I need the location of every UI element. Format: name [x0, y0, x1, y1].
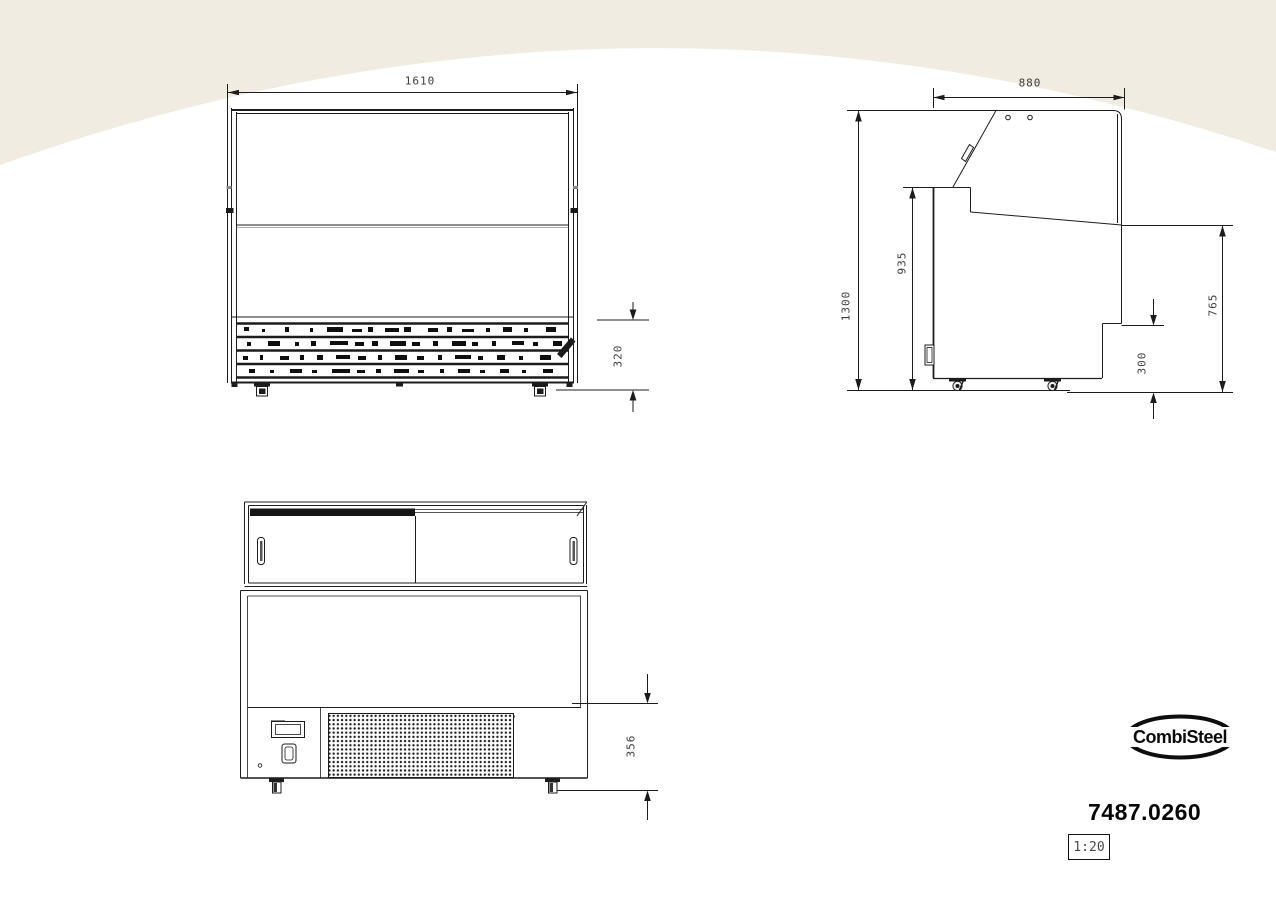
side-depth-dim-lines	[934, 88, 1125, 110]
side-view-drawing	[815, 55, 1265, 430]
power-switch	[282, 744, 296, 763]
dim-label-side-height: 1300	[840, 291, 853, 322]
louvre-leader-wedge	[557, 338, 576, 359]
drawing-sheet: 1610 320 880 1300 935 765 300 356 CombiS…	[0, 0, 1276, 897]
dim-label-side-recess: 300	[1136, 352, 1149, 375]
door-handles	[258, 538, 578, 565]
rear-view-drawing	[220, 495, 670, 830]
side-switch-box	[925, 345, 934, 365]
post-joint-marks	[226, 186, 578, 213]
scale-value: 1:20	[1073, 840, 1104, 855]
dim-label-side-display: 765	[1207, 294, 1220, 317]
side-height-dim-lines	[847, 111, 996, 391]
scale-box: 1:20	[1068, 834, 1110, 860]
side-casters	[949, 379, 1061, 391]
controller-display	[271, 721, 305, 738]
rear-dim-arrows	[644, 693, 651, 801]
floor-line	[847, 391, 1233, 393]
side-glass-diagonal	[953, 111, 996, 188]
dim-label-side-worktop: 935	[896, 252, 909, 275]
combisteel-logo: CombiSteel	[1118, 727, 1242, 747]
product-code: 7487.0260	[1088, 799, 1240, 826]
dim-label-front-base: 320	[612, 345, 625, 368]
side-glass-outline	[996, 111, 1122, 226]
side-dim-arrows	[855, 95, 1226, 403]
side-worktop	[933, 188, 1122, 226]
dim-label-side-depth: 880	[1019, 77, 1042, 90]
door-bottom-lines	[245, 583, 588, 587]
front-base-dim-lines	[556, 302, 649, 412]
front-dim-arrows	[228, 90, 636, 401]
dim-label-rear-plinth: 356	[625, 735, 638, 758]
rear-feet	[269, 779, 560, 794]
dim-label-front-width: 1610	[405, 75, 436, 88]
front-view-drawing	[195, 55, 665, 420]
rear-plinth-dim-lines	[556, 674, 658, 820]
side-lower-right	[1103, 225, 1122, 378]
door-track	[250, 509, 415, 517]
ventilation-grille	[329, 714, 514, 778]
front-bottom-ticks	[232, 383, 573, 387]
